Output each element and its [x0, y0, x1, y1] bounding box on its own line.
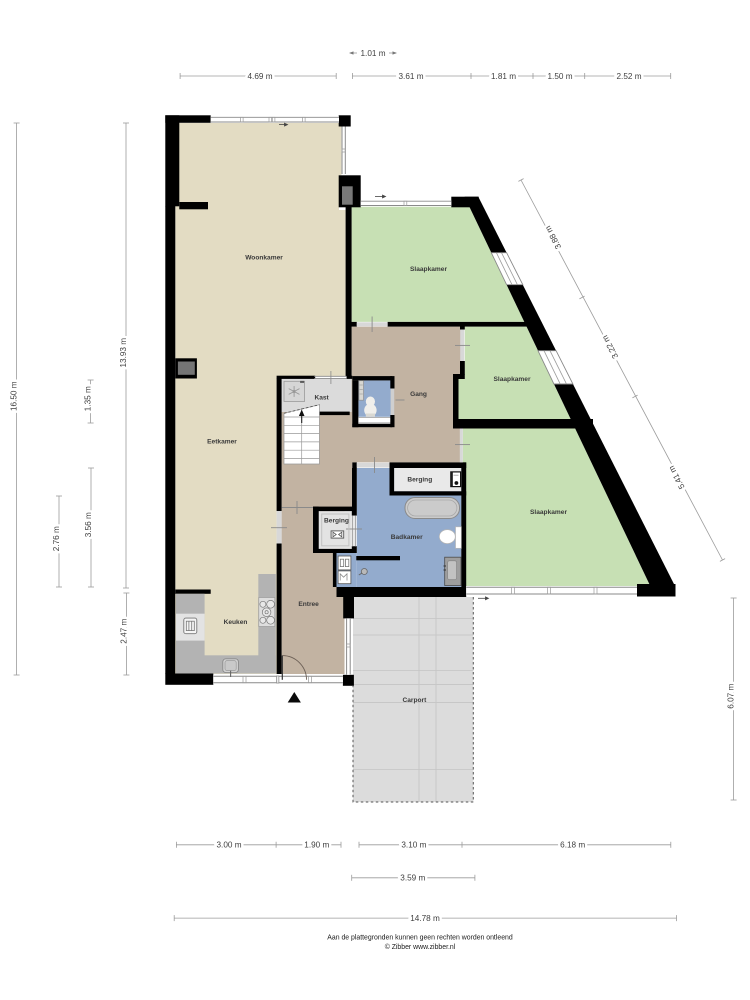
svg-text:Woonkamer: Woonkamer	[245, 255, 283, 262]
svg-text:Aan de plattegronden kunnen ge: Aan de plattegronden kunnen geen rechten…	[327, 935, 513, 942]
svg-text:1.35 m: 1.35 m	[84, 386, 93, 411]
svg-text:© Zibber www.zibber.nl: © Zibber www.zibber.nl	[385, 943, 456, 951]
svg-text:16.50 m: 16.50 m	[10, 381, 19, 411]
svg-text:Slaapkamer: Slaapkamer	[493, 376, 530, 383]
svg-text:4.69 m: 4.69 m	[247, 72, 272, 81]
svg-text:13.93 m: 13.93 m	[119, 338, 128, 368]
svg-text:Slaapkamer: Slaapkamer	[410, 266, 447, 273]
svg-text:Kast: Kast	[314, 395, 329, 402]
svg-text:2.47 m: 2.47 m	[119, 619, 128, 644]
svg-text:Entree: Entree	[298, 601, 319, 608]
svg-text:6.07 m: 6.07 m	[727, 684, 736, 709]
svg-text:1.50 m: 1.50 m	[547, 72, 572, 81]
svg-text:3.00 m: 3.00 m	[216, 841, 241, 850]
svg-text:Keuken: Keuken	[224, 619, 248, 626]
svg-text:3.61 m: 3.61 m	[398, 72, 423, 81]
svg-text:1.01 m: 1.01 m	[360, 49, 385, 58]
svg-text:Carport: Carport	[402, 697, 427, 704]
svg-text:2.52 m: 2.52 m	[616, 72, 641, 81]
svg-text:Eetkamer: Eetkamer	[207, 439, 237, 446]
svg-text:Gang: Gang	[410, 391, 427, 398]
svg-text:3.59 m: 3.59 m	[400, 874, 425, 883]
svg-text:Berging: Berging	[407, 477, 432, 484]
svg-text:Slaapkamer: Slaapkamer	[530, 509, 567, 516]
svg-text:1.90 m: 1.90 m	[304, 841, 329, 850]
svg-text:6.18 m: 6.18 m	[560, 841, 585, 850]
svg-text:Badkamer: Badkamer	[391, 534, 423, 541]
svg-text:14.78 m: 14.78 m	[410, 914, 440, 923]
svg-text:1.81 m: 1.81 m	[491, 72, 516, 81]
svg-text:Berging: Berging	[324, 518, 349, 525]
svg-text:3.56 m: 3.56 m	[84, 512, 93, 537]
svg-text:2.76 m: 2.76 m	[52, 526, 61, 551]
svg-text:3.10 m: 3.10 m	[401, 841, 426, 850]
